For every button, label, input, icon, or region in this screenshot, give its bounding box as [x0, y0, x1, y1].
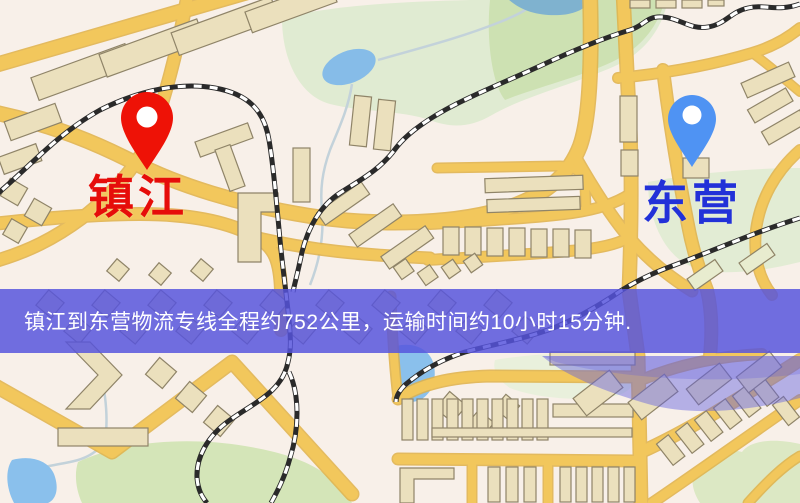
origin-city-label: 镇江	[88, 174, 188, 220]
map-screenshot: 镇江 东营 镇江到东营物流专线全程约752公里，运输时间约10小时15分钟.	[0, 0, 800, 503]
destination-city-label: 东营	[642, 180, 742, 226]
route-info-text: 镇江到东营物流专线全程约752公里，运输时间约10小时15分钟.	[0, 289, 800, 353]
map-canvas	[0, 0, 800, 503]
route-info-banner: 镇江到东营物流专线全程约752公里，运输时间约10小时15分钟.	[0, 289, 800, 353]
